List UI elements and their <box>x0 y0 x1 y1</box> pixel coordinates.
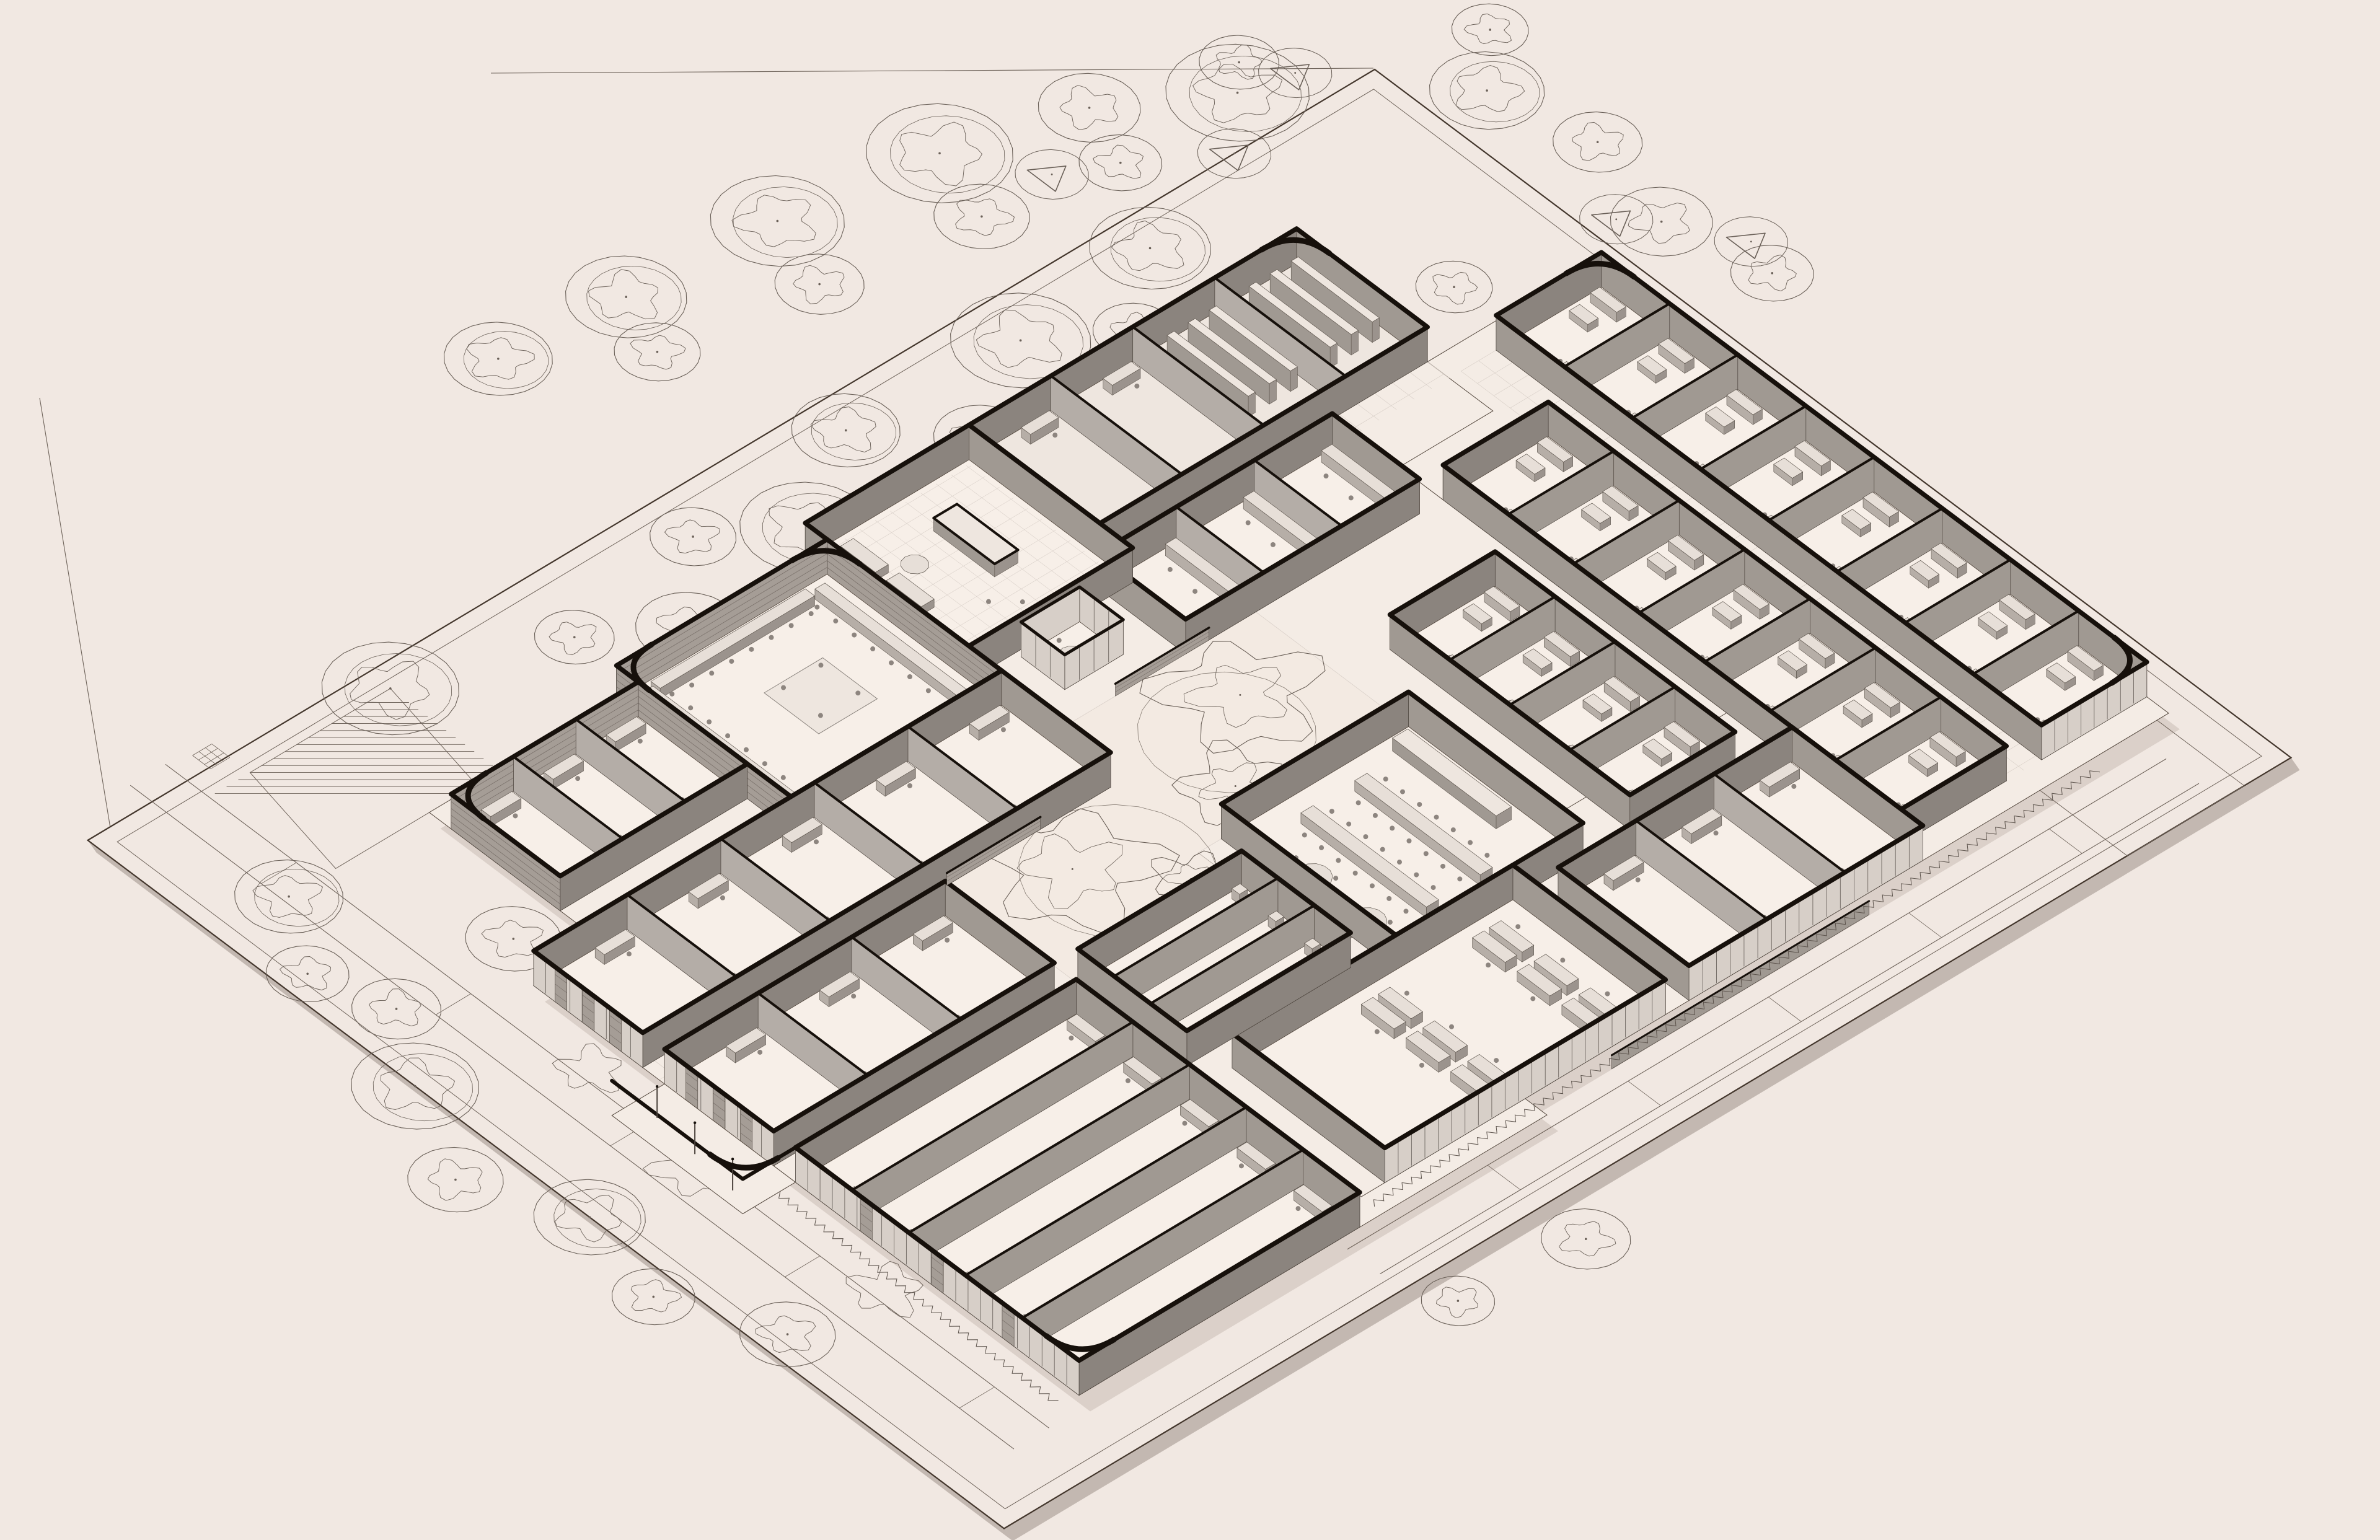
tree-trunk-dot <box>1088 107 1091 109</box>
chair-dot <box>744 747 749 752</box>
chair-dot <box>1353 871 1358 876</box>
chair-dot <box>1451 827 1456 832</box>
tree-foliage-outline <box>1456 66 1525 112</box>
planter-dot <box>1294 72 1296 74</box>
chair-dot <box>725 733 730 738</box>
chair-dot <box>789 623 794 628</box>
chair-dot <box>889 661 894 666</box>
tree-trunk-dot <box>513 938 515 940</box>
tree-trunk-dot <box>787 1333 789 1335</box>
chair-dot <box>1484 853 1489 858</box>
chair-dot <box>1356 800 1361 805</box>
chair-dot <box>1192 589 1197 594</box>
tree-trunk-dot <box>625 296 627 298</box>
chair-dot <box>1605 992 1610 997</box>
chair-dot <box>1182 1121 1187 1126</box>
tree-foliage-outline <box>589 270 658 319</box>
tree-trunk-dot <box>652 1296 654 1298</box>
chair-dot <box>1380 847 1385 852</box>
chair-dot <box>1403 909 1408 913</box>
chair-dot <box>1346 822 1351 827</box>
chair-dot <box>1400 790 1405 794</box>
chair-dot <box>1560 957 1565 962</box>
chair-dot <box>1486 962 1491 967</box>
chair-dot <box>1468 840 1473 845</box>
chair-dot <box>1363 834 1368 839</box>
chair-dot <box>669 692 674 697</box>
chair-dot <box>814 605 819 610</box>
chair-dot <box>1530 996 1535 1001</box>
tree-foliage-outline <box>1437 1287 1478 1318</box>
chair-dot <box>638 739 643 744</box>
tree-foliage-outline <box>900 122 982 186</box>
tree-trunk-dot <box>938 152 941 155</box>
tree <box>408 1147 503 1212</box>
tree-trunk-dot <box>306 972 309 975</box>
chair-dot <box>1375 1029 1380 1034</box>
chair-dot <box>1449 1024 1454 1029</box>
planter-dot <box>1750 240 1752 242</box>
chair-dot <box>1414 873 1419 878</box>
tree-foliage-outline <box>1559 1221 1616 1256</box>
tree <box>866 103 1013 203</box>
tree-trunk-dot <box>1660 221 1663 223</box>
chair-dot <box>1386 896 1391 901</box>
chair-dot <box>1246 521 1251 526</box>
chair-dot <box>1417 802 1422 807</box>
tile-line <box>193 755 211 769</box>
tree <box>934 184 1029 249</box>
tree <box>775 254 864 315</box>
chair-dot <box>1134 384 1139 389</box>
tree-trunk-dot <box>588 1216 591 1218</box>
tree-trunk-dot <box>1597 141 1599 143</box>
chair-dot <box>1419 1063 1424 1068</box>
coffee-table <box>901 555 928 574</box>
tree-canopy-inner-circle <box>733 187 837 258</box>
tree-trunk-dot <box>414 1085 416 1088</box>
chair-dot <box>1791 784 1796 789</box>
tree <box>1731 245 1814 301</box>
tree <box>1079 134 1162 191</box>
tree-trunk-dot <box>1771 272 1773 275</box>
site-context-line <box>491 68 1373 73</box>
chair-dot <box>1324 473 1329 478</box>
chair-dot <box>1383 777 1388 781</box>
site-context-line <box>40 398 110 828</box>
chair-dot <box>575 776 580 781</box>
chair-dot <box>1057 638 1062 643</box>
chair-dot <box>762 761 767 766</box>
planter-dot <box>1233 152 1235 154</box>
triangular-planter <box>1259 48 1332 98</box>
tree-trunk-dot <box>656 351 659 353</box>
chair-dot <box>814 839 819 844</box>
tree <box>566 256 687 338</box>
tile-line <box>212 744 230 757</box>
tree <box>710 176 844 266</box>
chair-dot <box>907 674 912 679</box>
canopy-post-cap <box>731 1158 734 1160</box>
chair-dot <box>1424 851 1429 856</box>
chair-dot <box>1636 878 1641 882</box>
tree-trunk-dot <box>1238 61 1240 64</box>
chair-dot <box>1370 883 1375 888</box>
chair-dot <box>749 647 754 652</box>
chair-dot <box>1333 876 1338 881</box>
chair-dot <box>781 775 786 780</box>
chair-dot <box>729 659 734 664</box>
planter-triangle <box>1027 166 1066 191</box>
chair-dot <box>709 671 714 675</box>
chair-dot <box>720 895 725 900</box>
chair-dot <box>907 783 912 788</box>
tree <box>444 322 553 395</box>
planter-triangle <box>1727 233 1766 258</box>
chair-dot <box>1390 825 1395 830</box>
chair-dot <box>707 719 712 724</box>
tree-foliage-outline <box>1093 145 1144 178</box>
axonometric-site-plan-drawing <box>0 0 2380 1540</box>
chair-dot <box>1397 860 1402 865</box>
planter-dot <box>1051 174 1053 175</box>
chair-dot <box>513 813 518 818</box>
tree <box>1199 35 1279 89</box>
tree <box>1452 4 1528 56</box>
tree-foliage-outline <box>1628 203 1690 244</box>
chair-dot <box>818 662 823 667</box>
tree-foliage-outline <box>732 195 816 247</box>
chair-dot <box>1239 1163 1244 1168</box>
tree-trunk-dot <box>395 1008 398 1010</box>
tree-trunk-dot <box>1119 162 1122 164</box>
tree-trunk-dot <box>288 895 290 898</box>
tree-trunk-dot <box>497 358 500 360</box>
tree-trunk-dot <box>1236 92 1239 94</box>
chair-dot <box>1714 830 1719 835</box>
tree-canopy-inner-circle <box>891 116 1005 193</box>
tree-trunk-dot <box>1149 247 1152 250</box>
tree-trunk-dot <box>845 429 847 432</box>
chair-dot <box>1302 832 1307 837</box>
chair-dot <box>945 938 950 943</box>
canopy-post-cap <box>694 1122 696 1124</box>
chair-dot <box>1336 858 1341 863</box>
chair-dot <box>1126 1078 1130 1083</box>
tree <box>1430 52 1545 130</box>
chair-dot <box>986 599 991 604</box>
tree-trunk-dot <box>1585 1238 1587 1240</box>
chair-dot <box>1457 876 1462 881</box>
chair-dot <box>1440 864 1445 869</box>
chair-dot <box>855 690 860 695</box>
triangular-planter <box>1015 149 1088 199</box>
chair-dot <box>809 611 814 616</box>
chair-dot <box>1515 924 1520 929</box>
garden-dot <box>1072 868 1073 870</box>
chair-dot <box>870 646 875 651</box>
chair-dot <box>627 951 632 956</box>
tree <box>1541 1209 1631 1270</box>
tree-canopy-inner-circle <box>464 332 548 389</box>
chair-dot <box>818 713 823 718</box>
tree <box>1553 112 1642 172</box>
tree-trunk-dot <box>454 1179 457 1181</box>
tree-trunk-dot <box>1486 89 1488 92</box>
chair-dot <box>1434 815 1439 820</box>
garden-dot <box>1239 694 1241 696</box>
tree-trunk-dot <box>818 283 821 286</box>
chair-dot <box>1069 1036 1073 1041</box>
chair-dot <box>1271 542 1276 547</box>
chair-dot <box>1373 813 1378 818</box>
chair-dot <box>1388 920 1393 925</box>
tree-foliage-outline <box>956 199 1015 235</box>
chair-dot <box>688 705 693 710</box>
chair-dot <box>1406 838 1411 843</box>
drawing-canvas <box>0 0 2380 1540</box>
tree-foliage-outline <box>1464 14 1511 43</box>
tree-trunk-dot <box>1489 29 1491 31</box>
chair-dot <box>769 635 774 640</box>
chair-dot <box>926 688 931 693</box>
tree-trunk-dot <box>1453 286 1455 288</box>
chair-dot <box>757 1050 762 1055</box>
chair-dot <box>833 618 838 623</box>
tree-trunk-dot <box>981 215 983 218</box>
tree-trunk-dot <box>1457 1300 1460 1302</box>
chair-dot <box>1168 567 1173 572</box>
chair-dot <box>781 685 786 690</box>
chair-dot <box>1431 885 1436 890</box>
tree-trunk-dot <box>389 687 392 690</box>
tree-trunk-dot <box>692 535 694 538</box>
chair-dot <box>1295 1206 1300 1211</box>
chair-dot <box>1494 1058 1499 1063</box>
chair-dot <box>1052 433 1057 438</box>
tree-trunk-dot <box>777 220 779 222</box>
chair-dot <box>852 633 857 638</box>
triangular-planter <box>1714 217 1787 266</box>
canopy-post-cap <box>656 1085 658 1088</box>
chair-dot <box>689 683 694 688</box>
chair-dot <box>1349 495 1354 500</box>
tree <box>614 323 700 381</box>
chair-dot <box>1319 845 1324 850</box>
planter-dot <box>1615 218 1617 220</box>
tree-trunk-dot <box>573 636 576 638</box>
garden-dot <box>1235 785 1236 787</box>
chair-dot <box>851 993 856 998</box>
tree-canopy-inner-circle <box>1450 61 1540 122</box>
tree-foliage-outline <box>467 338 534 380</box>
chair-dot <box>1329 809 1334 814</box>
tree-trunk-dot <box>1020 340 1022 342</box>
chair-dot <box>1020 599 1025 604</box>
chair-dot <box>1404 991 1409 996</box>
chair-dot <box>1001 727 1006 732</box>
tree <box>1038 73 1140 142</box>
